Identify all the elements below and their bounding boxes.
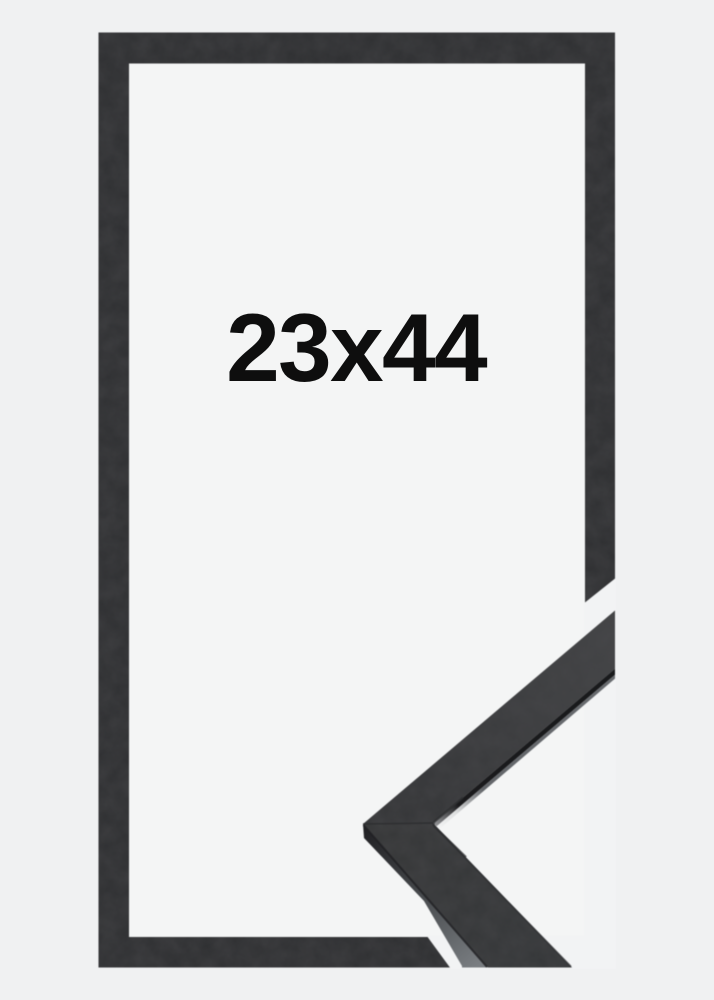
svg-text:23x44: 23x44 [226,295,488,402]
